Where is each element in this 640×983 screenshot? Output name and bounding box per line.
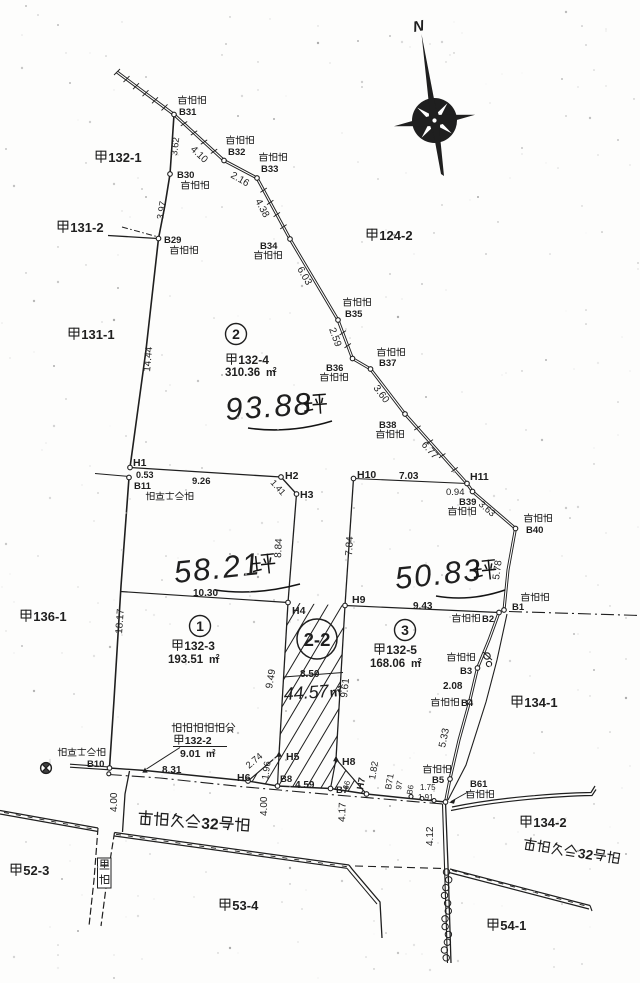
svg-text:B36: B36 xyxy=(326,363,343,374)
svg-text:B40: B40 xyxy=(526,525,543,536)
svg-text:B10: B10 xyxy=(87,759,104,770)
svg-text:1.91: 1.91 xyxy=(418,793,434,802)
svg-text:4.17: 4.17 xyxy=(337,802,349,822)
svg-text:B38: B38 xyxy=(379,420,396,431)
svg-text:H8: H8 xyxy=(342,756,356,768)
svg-text:32: 32 xyxy=(201,815,219,833)
svg-text:54-1: 54-1 xyxy=(500,918,526,933)
svg-text:4.00: 4.00 xyxy=(259,796,270,816)
svg-text:14.44: 14.44 xyxy=(142,346,155,372)
svg-text:B31: B31 xyxy=(179,107,197,118)
svg-text:B34: B34 xyxy=(260,241,278,252)
svg-text:3.62: 3.62 xyxy=(169,137,182,157)
svg-text:B4: B4 xyxy=(461,698,474,709)
svg-text:B33: B33 xyxy=(261,164,278,175)
svg-text:131-1: 131-1 xyxy=(81,327,114,342)
svg-text:8.50: 8.50 xyxy=(300,669,320,680)
svg-text:8.31: 8.31 xyxy=(162,765,182,776)
svg-text:H6: H6 xyxy=(237,772,251,784)
svg-text:2: 2 xyxy=(232,326,240,342)
svg-text:2: 2 xyxy=(216,654,220,661)
svg-text:H1: H1 xyxy=(133,457,147,469)
svg-text:B32: B32 xyxy=(228,147,245,158)
svg-text:B61: B61 xyxy=(470,779,488,790)
svg-text:134-2: 134-2 xyxy=(533,815,566,830)
svg-text:B39: B39 xyxy=(459,497,476,508)
svg-text:2.08: 2.08 xyxy=(443,681,463,692)
svg-text:9.26: 9.26 xyxy=(192,476,211,487)
svg-text:132-3: 132-3 xyxy=(184,639,215,653)
svg-text:B1: B1 xyxy=(512,602,525,613)
svg-text:B37: B37 xyxy=(379,358,396,369)
svg-text:H10: H10 xyxy=(357,469,376,481)
svg-text:124-2: 124-2 xyxy=(379,228,412,243)
svg-text:4.59: 4.59 xyxy=(295,780,315,791)
svg-text:H4: H4 xyxy=(292,605,306,617)
svg-text:H2: H2 xyxy=(285,470,299,482)
svg-text:9.43: 9.43 xyxy=(413,601,433,612)
svg-text:10.30: 10.30 xyxy=(193,588,218,599)
svg-text:B8: B8 xyxy=(280,774,292,785)
svg-text:B11: B11 xyxy=(134,481,152,492)
svg-text:132-4: 132-4 xyxy=(238,353,269,367)
svg-text:2: 2 xyxy=(418,658,422,665)
svg-text:132-1: 132-1 xyxy=(108,150,141,165)
svg-text:53-4: 53-4 xyxy=(232,898,259,913)
svg-text:18.17: 18.17 xyxy=(114,608,127,634)
svg-text:136-1: 136-1 xyxy=(33,609,66,624)
svg-text:4.00: 4.00 xyxy=(109,792,120,812)
svg-text:44.57: 44.57 xyxy=(283,681,330,704)
svg-text:93.88: 93.88 xyxy=(224,386,314,427)
svg-text:2: 2 xyxy=(273,367,277,374)
svg-text:2-2: 2-2 xyxy=(304,629,331,650)
svg-text:132-2: 132-2 xyxy=(185,735,212,747)
svg-text:B3: B3 xyxy=(460,666,472,677)
svg-text:9.61: 9.61 xyxy=(339,677,352,698)
svg-text:132-5: 132-5 xyxy=(386,643,417,657)
svg-text:134-1: 134-1 xyxy=(524,695,557,710)
svg-text:B2: B2 xyxy=(482,614,494,625)
svg-text:8.84: 8.84 xyxy=(273,538,285,558)
svg-text:9.01: 9.01 xyxy=(180,748,201,760)
svg-text:B35: B35 xyxy=(345,309,363,320)
svg-text:168.06: 168.06 xyxy=(370,658,405,670)
svg-text:4.12: 4.12 xyxy=(425,826,436,846)
svg-text:H3: H3 xyxy=(300,489,314,501)
svg-text:7.03: 7.03 xyxy=(399,471,419,482)
svg-text:B30: B30 xyxy=(177,170,194,181)
svg-text:H5: H5 xyxy=(286,751,300,763)
svg-text:1: 1 xyxy=(196,618,204,634)
svg-text:H9: H9 xyxy=(352,594,366,606)
svg-text:3: 3 xyxy=(401,622,409,638)
svg-text:32: 32 xyxy=(577,846,594,863)
svg-text:52-3: 52-3 xyxy=(23,863,49,878)
svg-text:310.36: 310.36 xyxy=(225,367,260,379)
svg-text:H11: H11 xyxy=(470,471,489,483)
svg-text:B29: B29 xyxy=(164,235,181,246)
svg-text:7.84: 7.84 xyxy=(344,536,356,556)
svg-text:0.53: 0.53 xyxy=(136,470,154,480)
